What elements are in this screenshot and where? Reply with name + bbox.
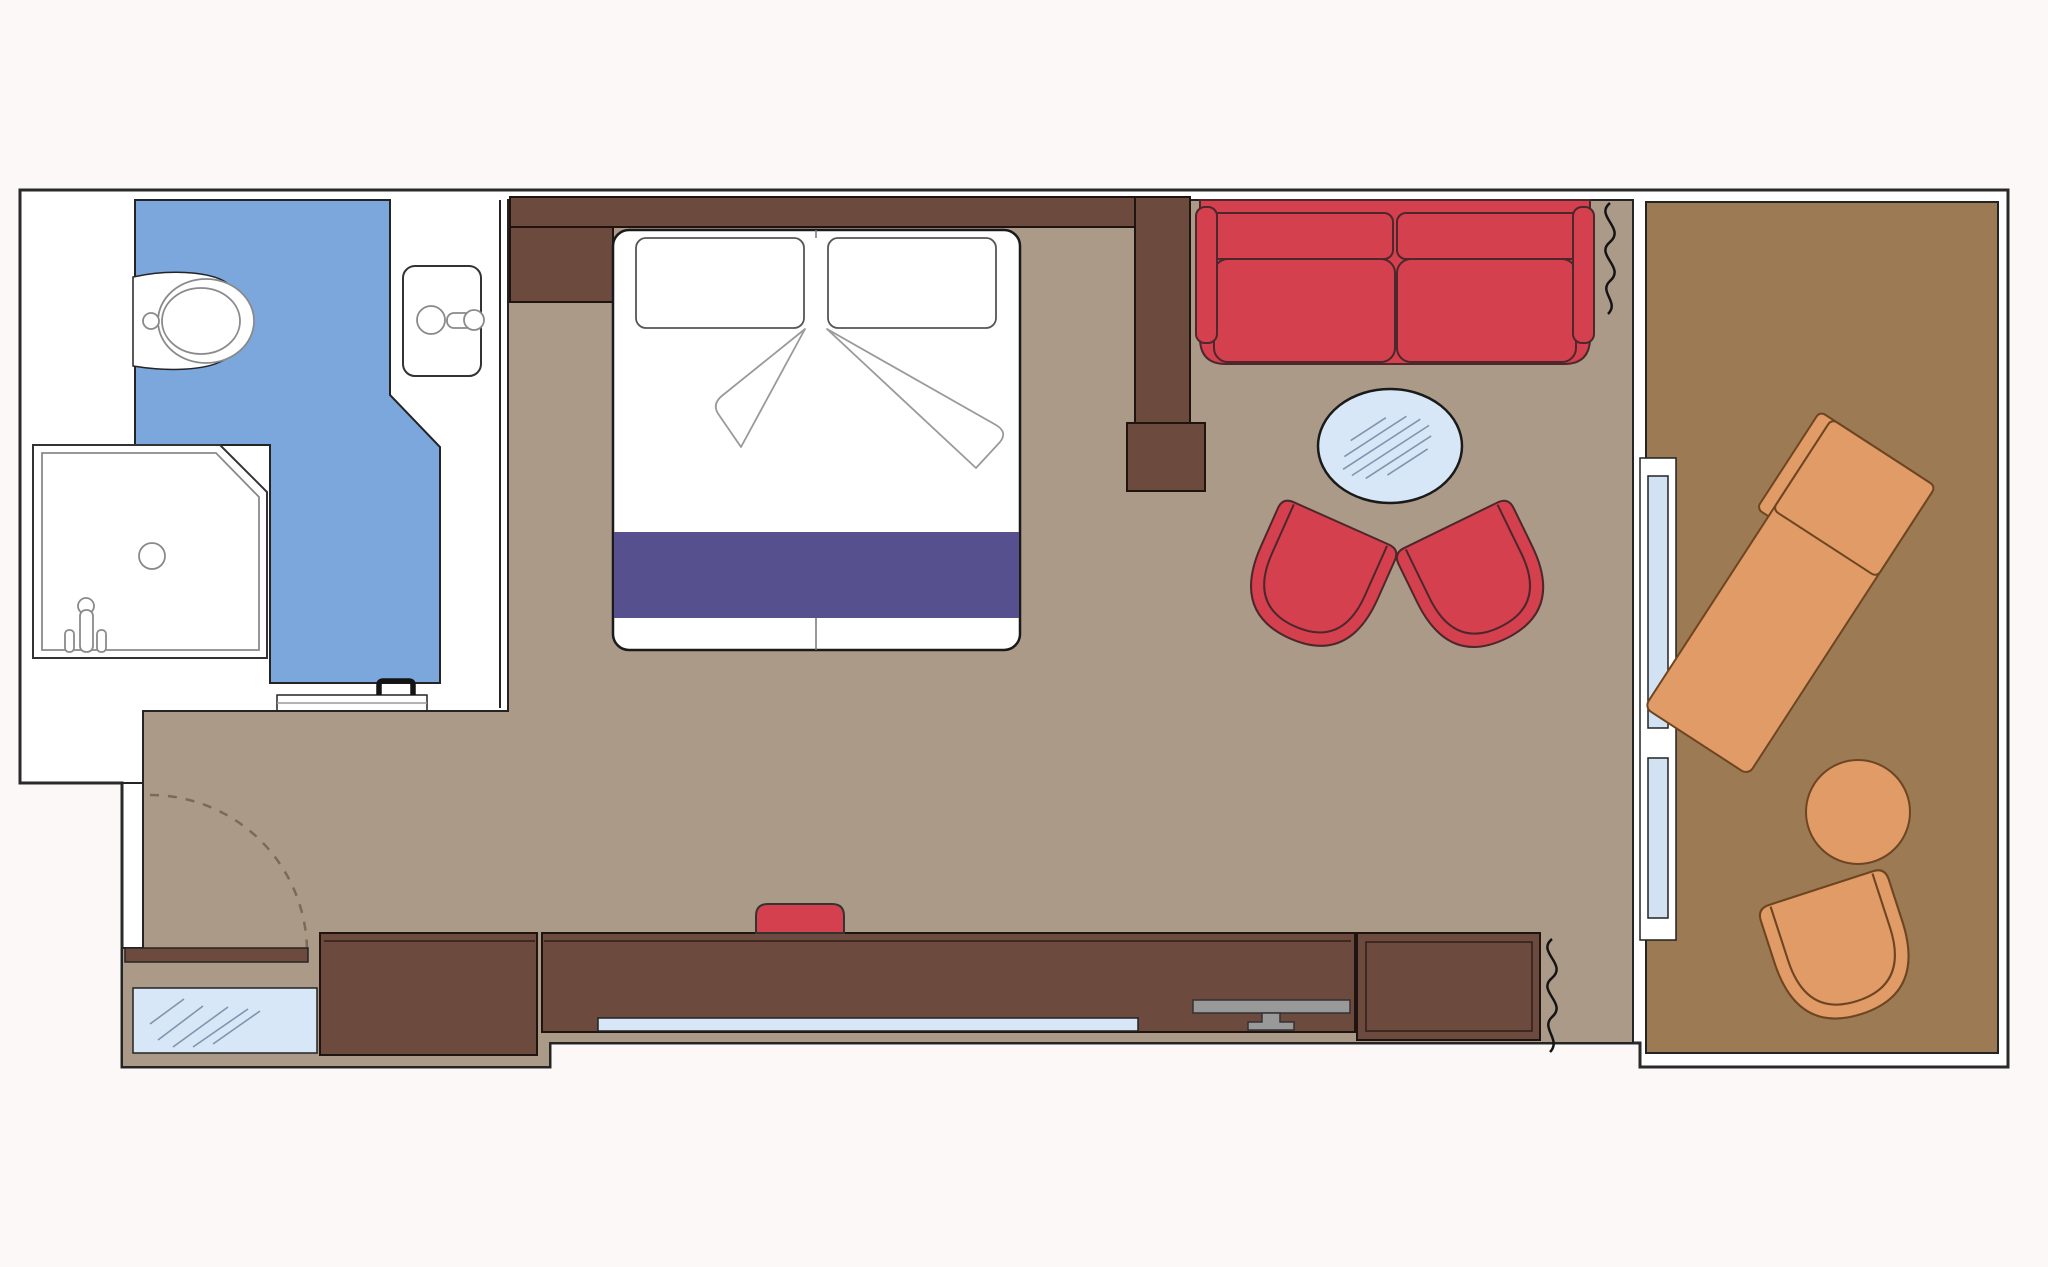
desk	[542, 933, 1355, 1032]
shower	[33, 445, 267, 658]
sofa-seat-cushion-left	[1214, 259, 1395, 362]
sink	[403, 266, 484, 376]
shower-handle-left	[65, 630, 74, 652]
glass-closet-panel	[133, 988, 317, 1053]
double-bed	[613, 230, 1020, 650]
sofa-back-cushion-left	[1206, 213, 1393, 259]
wardrobe	[510, 227, 613, 302]
floor-plan	[0, 0, 2048, 1267]
balcony	[1633, 202, 1998, 1053]
sofa-armrest-left	[1196, 207, 1217, 343]
shower-mixer-body	[80, 610, 93, 652]
glass-table-top	[1318, 389, 1462, 503]
headboard-wall	[510, 197, 1135, 227]
desk-stool	[756, 904, 844, 933]
sofa-back-cushion-right	[1397, 213, 1584, 259]
toilet-flush-button	[143, 313, 159, 329]
pillow-right	[828, 238, 996, 328]
sink-drain	[417, 306, 445, 334]
closet-glass	[133, 988, 317, 1053]
sofa-seat-cushion-right	[1397, 259, 1576, 362]
mirror-strip	[598, 1018, 1138, 1031]
tv-screen	[1193, 1000, 1350, 1013]
entry-door-leaf	[125, 948, 308, 962]
balcony-table	[1806, 760, 1910, 864]
cabinet-left	[320, 933, 537, 1055]
sink-faucet-base	[464, 310, 484, 330]
shower-handle-right	[97, 630, 106, 652]
coffee-table	[1318, 389, 1462, 503]
sofa	[1196, 200, 1594, 364]
bed-runner	[614, 532, 1019, 618]
sofa-armrest-right	[1573, 207, 1594, 343]
balcony-door-glass-bottom	[1648, 758, 1668, 918]
cabinet-right	[1357, 933, 1540, 1040]
shower-tray	[33, 445, 267, 658]
divider-wall-foot	[1127, 423, 1205, 491]
divider-wall-column	[1135, 197, 1190, 423]
pillow-left	[636, 238, 804, 328]
